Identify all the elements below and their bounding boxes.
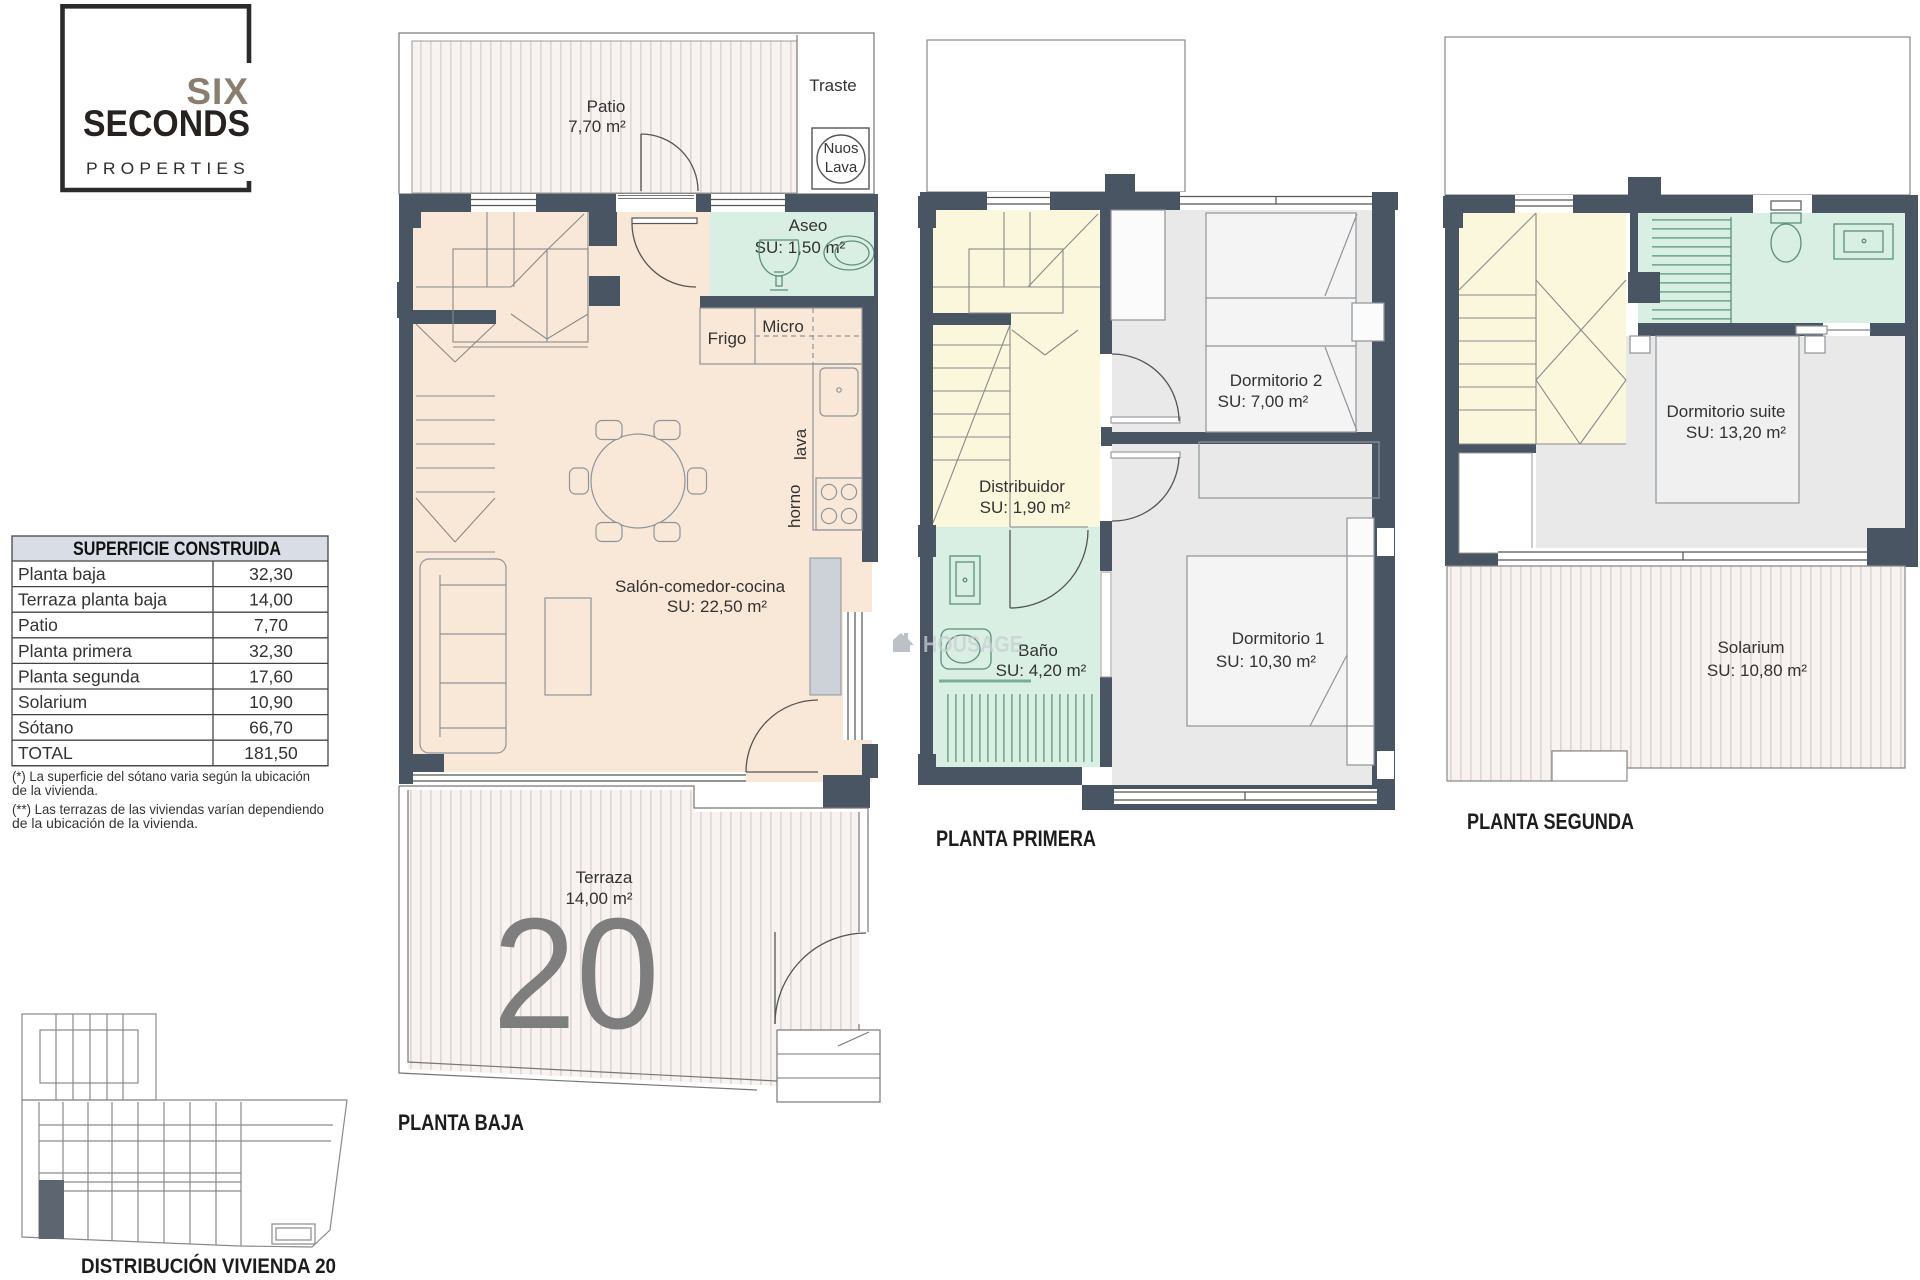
svg-text:181,50: 181,50 <box>244 743 298 763</box>
svg-text:7,70 m²: 7,70 m² <box>568 117 626 136</box>
svg-text:de la ubicación de la vivienda: de la ubicación de la vivienda. <box>12 815 198 831</box>
svg-text:Sótano: Sótano <box>18 718 73 738</box>
svg-text:Patio: Patio <box>587 97 626 116</box>
svg-text:Dormitorio 1: Dormitorio 1 <box>1232 629 1325 648</box>
svg-text:32,30: 32,30 <box>249 641 293 661</box>
svg-text:SECONDS: SECONDS <box>83 103 250 144</box>
svg-text:PLANTA SEGUNDA: PLANTA SEGUNDA <box>1467 809 1634 834</box>
svg-text:Dormitorio 2: Dormitorio 2 <box>1230 371 1323 390</box>
svg-text:SU: 10,30 m²: SU: 10,30 m² <box>1216 652 1316 671</box>
svg-text:Distribuidor: Distribuidor <box>979 477 1065 496</box>
svg-text:lava: lava <box>791 428 810 460</box>
svg-text:SU: 13,20 m²: SU: 13,20 m² <box>1686 423 1786 442</box>
svg-text:SU: 22,50 m²: SU: 22,50 m² <box>667 597 767 616</box>
svg-text:SU: 7,00 m²: SU: 7,00 m² <box>1218 392 1309 411</box>
svg-text:DISTRIBUCIÓN VIVIENDA 20: DISTRIBUCIÓN VIVIENDA 20 <box>81 1254 336 1278</box>
svg-text:PLANTA BAJA: PLANTA BAJA <box>398 1110 524 1135</box>
svg-text:20: 20 <box>493 886 660 1062</box>
svg-text:de la vivienda.: de la vivienda. <box>12 782 98 798</box>
svg-text:17,60: 17,60 <box>249 666 293 686</box>
svg-text:SU: 4,20 m²: SU: 4,20 m² <box>996 661 1087 680</box>
svg-text:PROPERTIES: PROPERTIES <box>86 159 250 178</box>
svg-text:Salón-comedor-cocina: Salón-comedor-cocina <box>615 577 786 596</box>
svg-text:Terraza: Terraza <box>576 868 633 887</box>
svg-text:PLANTA PRIMERA: PLANTA PRIMERA <box>936 826 1096 851</box>
svg-text:Solarium: Solarium <box>1717 638 1784 657</box>
svg-text:horno: horno <box>785 485 804 528</box>
svg-text:TOTAL: TOTAL <box>18 743 73 763</box>
svg-text:Dormitorio suite: Dormitorio suite <box>1666 402 1785 421</box>
svg-text:Aseo: Aseo <box>789 216 828 235</box>
svg-text:66,70: 66,70 <box>249 718 293 738</box>
svg-text:Planta primera: Planta primera <box>18 641 132 661</box>
svg-text:Terraza planta baja: Terraza planta baja <box>18 590 167 610</box>
svg-text:Solarium: Solarium <box>18 692 87 712</box>
svg-text:10,90: 10,90 <box>249 692 293 712</box>
svg-text:HOUSAGE: HOUSAGE <box>923 631 1023 657</box>
svg-text:SUPERFICIE CONSTRUIDA: SUPERFICIE CONSTRUIDA <box>73 539 281 560</box>
svg-text:7,70: 7,70 <box>254 615 288 635</box>
svg-text:14,00: 14,00 <box>249 590 293 610</box>
svg-text:Patio: Patio <box>18 615 58 635</box>
svg-text:Nuos: Nuos <box>823 140 858 157</box>
svg-text:SU: 10,80 m²: SU: 10,80 m² <box>1707 661 1807 680</box>
svg-text:Micro: Micro <box>762 317 804 336</box>
svg-text:SU: 1,90 m²: SU: 1,90 m² <box>980 498 1071 517</box>
svg-text:Baño: Baño <box>1018 641 1058 660</box>
svg-text:32,30: 32,30 <box>249 564 293 584</box>
svg-text:Traste: Traste <box>809 76 857 95</box>
svg-text:Lava: Lava <box>825 159 858 176</box>
svg-text:Planta segunda: Planta segunda <box>18 666 140 686</box>
svg-text:Planta baja: Planta baja <box>18 564 106 584</box>
svg-text:Frigo: Frigo <box>708 329 747 348</box>
